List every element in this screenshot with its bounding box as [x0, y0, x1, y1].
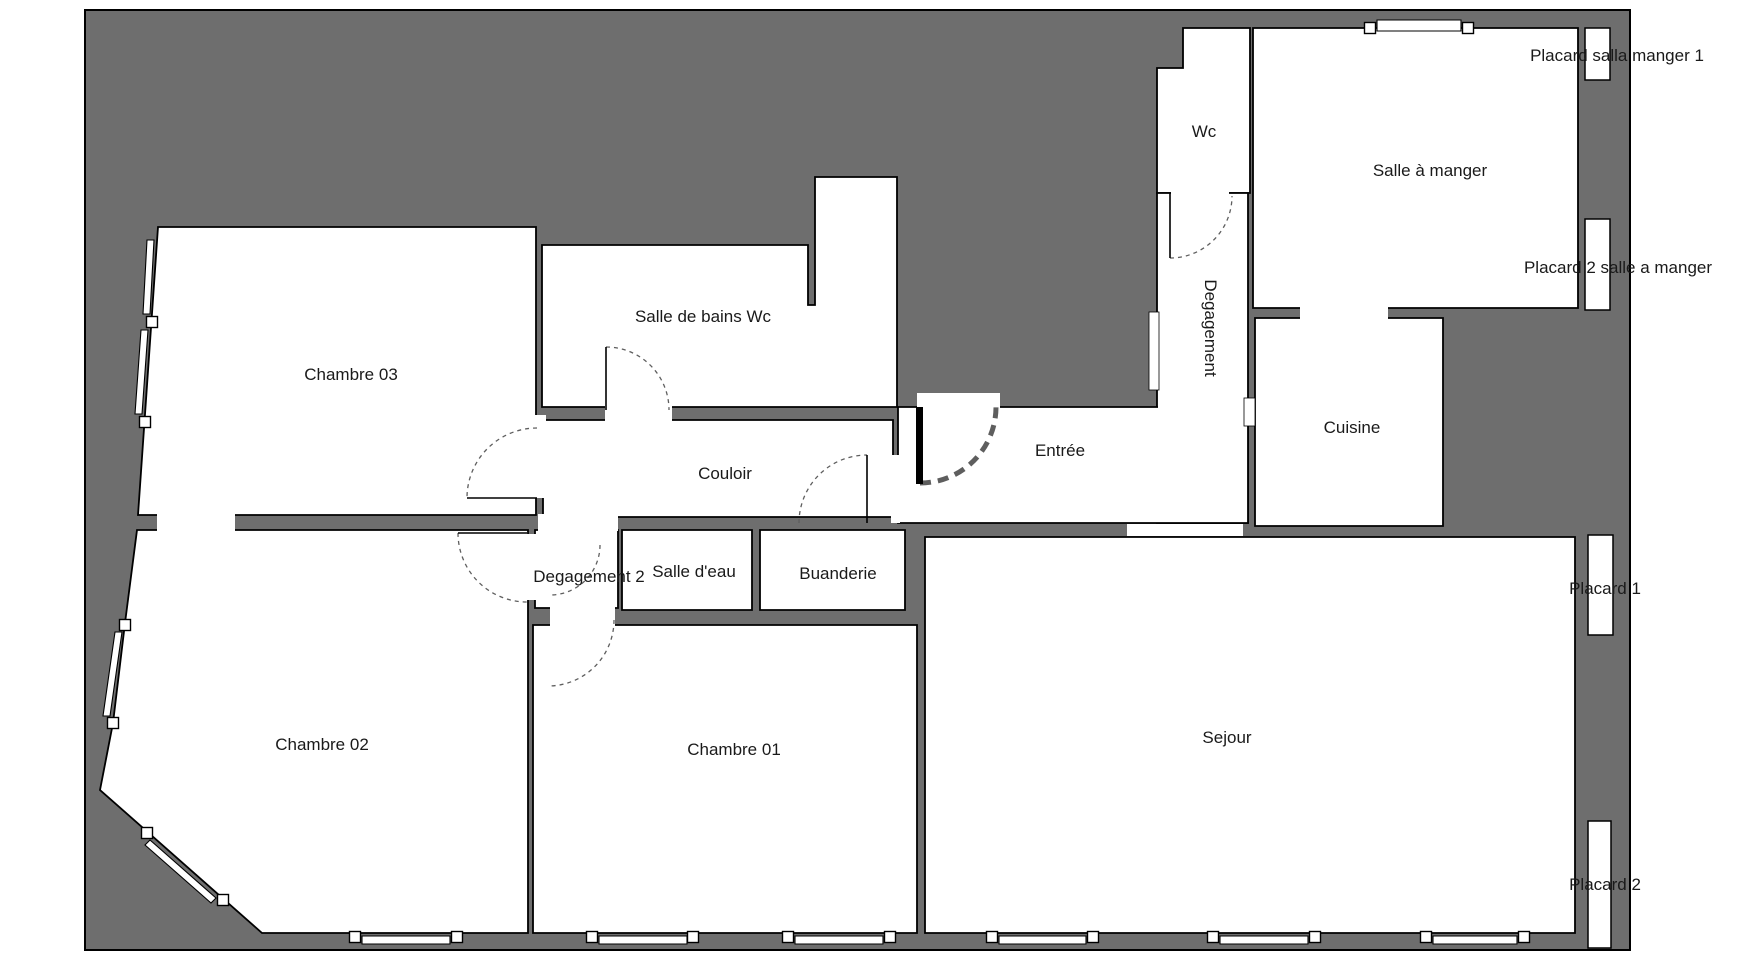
window-square[interactable] — [147, 317, 158, 328]
window-square[interactable] — [140, 417, 151, 428]
window-square[interactable] — [1365, 23, 1376, 34]
floorplan-page: Chambre 03Chambre 02Chambre 01Salle de b… — [0, 0, 1748, 974]
window-square[interactable] — [350, 932, 361, 943]
window-sejour-bottom-3[interactable] — [1433, 936, 1517, 944]
window-sam-top[interactable] — [1377, 20, 1461, 31]
label-degagement: Degagement — [1201, 279, 1220, 377]
window-square[interactable] — [1208, 932, 1219, 943]
window-square[interactable] — [587, 932, 598, 943]
opening-deg2-c01 — [550, 606, 615, 627]
label-chambre-02: Chambre 02 — [275, 735, 369, 754]
window-square[interactable] — [218, 895, 229, 906]
window-square[interactable] — [108, 718, 119, 729]
door-leaf-entrance[interactable] — [916, 407, 923, 484]
label-entree: Entrée — [1035, 441, 1085, 460]
label-salle-a-manger: Salle à manger — [1373, 161, 1488, 180]
label-sejour: Sejour — [1202, 728, 1251, 747]
opening-wc-corridor — [1171, 189, 1229, 197]
window-square[interactable] — [142, 828, 153, 839]
window-c02-bottom[interactable] — [362, 936, 450, 944]
label-couloir: Couloir — [698, 464, 752, 483]
window-square[interactable] — [1519, 932, 1530, 943]
opening-couloir-deg2 — [538, 514, 618, 531]
window-square[interactable] — [120, 620, 131, 631]
window-square[interactable] — [783, 932, 794, 943]
window-c01-bottom-2[interactable] — [795, 936, 883, 944]
label-placard-1: Placard 1 — [1569, 579, 1641, 598]
opening-couloir-entree — [891, 455, 900, 523]
window-square[interactable] — [452, 932, 463, 943]
opening-sam-cuisine — [1300, 306, 1388, 320]
label-salle-de-bains-wc: Salle de bains Wc — [635, 307, 772, 326]
window-square[interactable] — [987, 932, 998, 943]
window-square[interactable] — [688, 932, 699, 943]
wall-notch-corridor — [1149, 312, 1159, 390]
label-placard-salla-manger-1: Placard salla manger 1 — [1530, 46, 1704, 65]
window-square[interactable] — [1463, 23, 1474, 34]
label-salle-deau: Salle d'eau — [652, 562, 736, 581]
window-square[interactable] — [1310, 932, 1321, 943]
opening-entrance-door — [917, 393, 1000, 409]
label-buanderie: Buanderie — [799, 564, 877, 583]
window-sejour-bottom-2[interactable] — [1220, 936, 1308, 944]
wall-notch-cuisine — [1244, 398, 1255, 426]
floorplan-canvas[interactable]: Chambre 03Chambre 02Chambre 01Salle de b… — [0, 0, 1748, 974]
label-cuisine: Cuisine — [1324, 418, 1381, 437]
opening-corridor-entree — [1158, 402, 1247, 412]
opening-c03-c02 — [157, 514, 235, 531]
window-square[interactable] — [1421, 932, 1432, 943]
label-placard-2: Placard 2 — [1569, 875, 1641, 894]
label-degagement-2: Degagement 2 — [533, 567, 645, 586]
opening-corridor-entree-v — [1152, 409, 1162, 521]
room-entree[interactable] — [898, 407, 1248, 523]
label-wc: Wc — [1192, 122, 1217, 141]
opening-corridor-sejour — [1127, 524, 1243, 536]
window-square[interactable] — [1088, 932, 1099, 943]
window-square[interactable] — [885, 932, 896, 943]
window-c01-bottom-1[interactable] — [599, 936, 687, 944]
label-chambre-01: Chambre 01 — [687, 740, 781, 759]
label-placard-2-salle-manger: Placard 2 salle a manger — [1524, 258, 1712, 277]
window-sejour-bottom-1[interactable] — [999, 936, 1086, 944]
label-chambre-03: Chambre 03 — [304, 365, 398, 384]
opening-sdb-couloir — [605, 404, 672, 422]
